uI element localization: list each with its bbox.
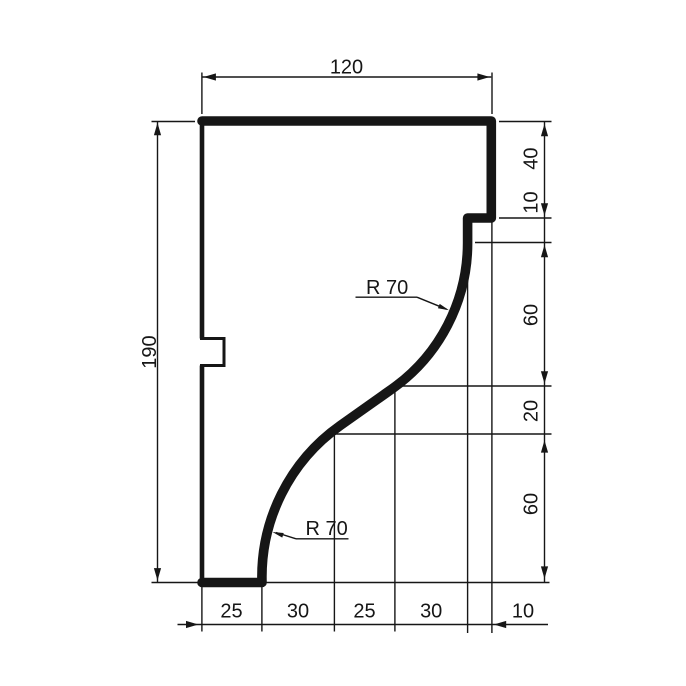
svg-text:25: 25 [220, 601, 242, 623]
svg-text:25: 25 [353, 601, 375, 623]
svg-text:R 70: R 70 [306, 518, 348, 540]
svg-text:40: 40 [520, 147, 542, 169]
svg-text:20: 20 [520, 400, 542, 422]
svg-text:30: 30 [420, 601, 442, 623]
svg-text:30: 30 [287, 601, 309, 623]
svg-text:60: 60 [520, 304, 542, 326]
svg-text:120: 120 [330, 57, 363, 79]
svg-text:R 70: R 70 [366, 277, 408, 299]
svg-text:10: 10 [512, 601, 534, 623]
svg-text:190: 190 [139, 335, 161, 368]
svg-text:10: 10 [520, 191, 542, 213]
svg-text:60: 60 [520, 493, 542, 515]
